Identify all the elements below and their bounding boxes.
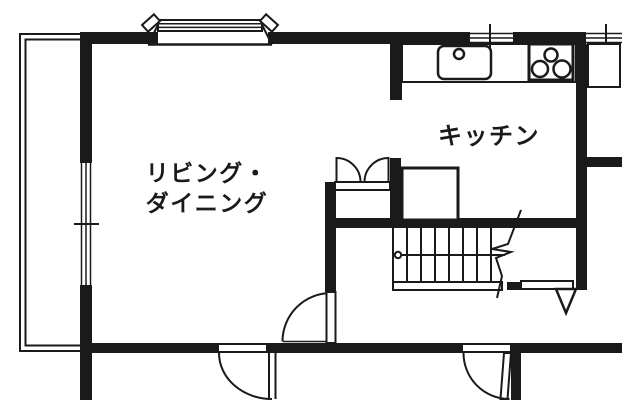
refrigerator-space bbox=[402, 168, 458, 220]
gas-stove-3-burner-icon bbox=[529, 44, 573, 80]
hinged-door-bottom-right bbox=[462, 344, 511, 399]
hinged-door-living-to-hall bbox=[283, 292, 336, 343]
room-label-kitchen: キッチン bbox=[369, 123, 609, 151]
room-label-living-dining: リビング・ ダイニング bbox=[87, 158, 327, 218]
hinged-door-bottom-left bbox=[218, 344, 276, 399]
entrance-triangle-marker bbox=[556, 289, 576, 313]
floor-plan: リビング・ ダイニング キッチン bbox=[0, 0, 640, 420]
double-door-closet bbox=[335, 158, 390, 190]
living-dining-label-line2: ダイニング bbox=[87, 188, 327, 218]
balcony-outline bbox=[20, 34, 80, 351]
kitchen-sink-icon bbox=[438, 46, 491, 79]
bay-window bbox=[142, 14, 278, 44]
living-dining-label-line1: リビング・ bbox=[87, 158, 327, 188]
side-cabinet bbox=[588, 44, 620, 87]
